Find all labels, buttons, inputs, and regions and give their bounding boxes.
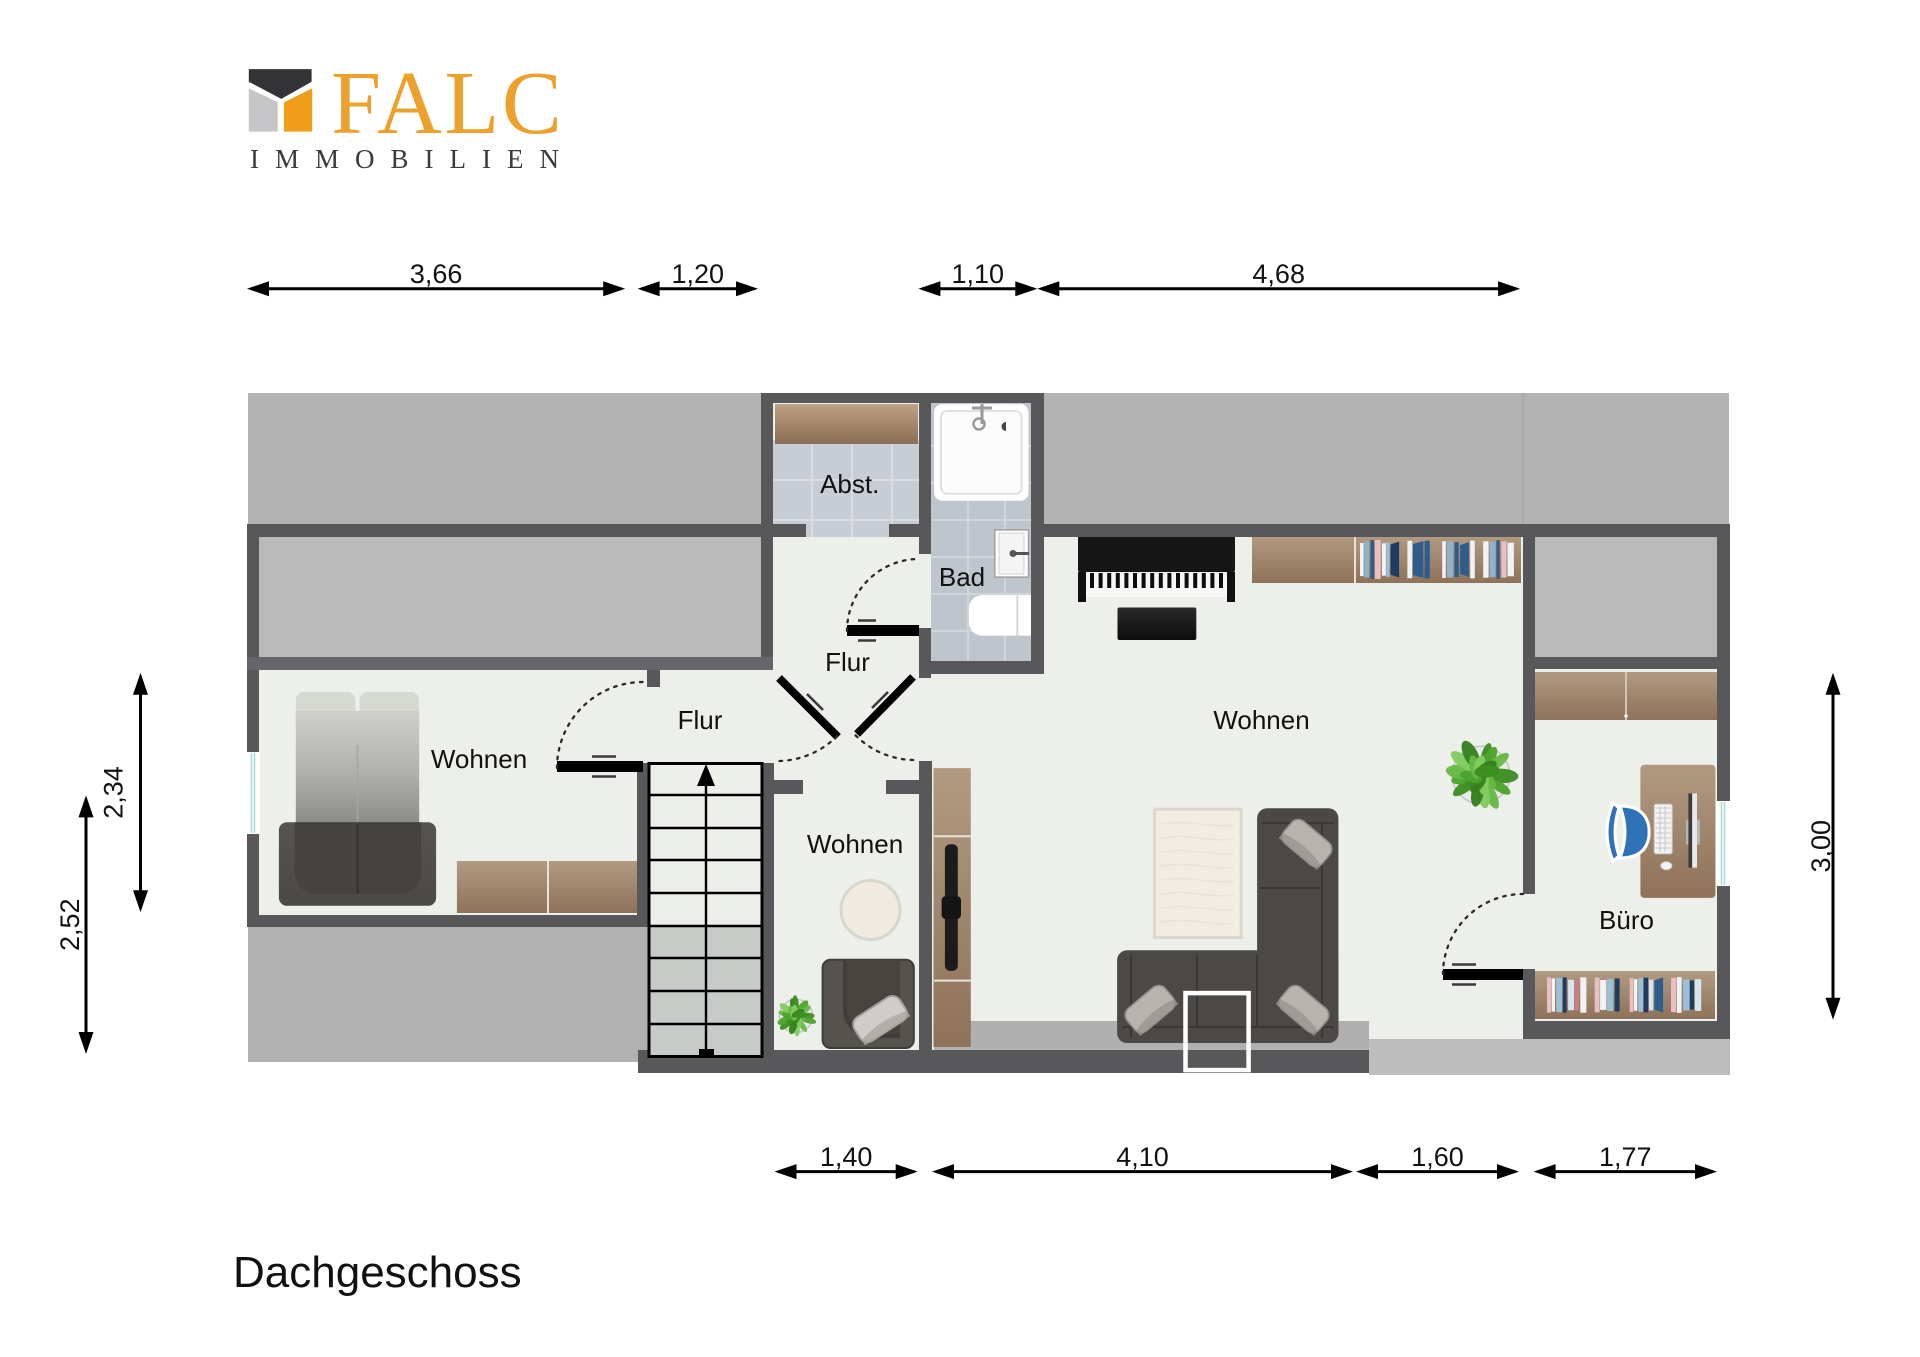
svg-text:1,40: 1,40	[820, 1142, 873, 1172]
svg-text:Flur: Flur	[678, 705, 723, 735]
svg-text:3,66: 3,66	[410, 259, 463, 289]
svg-text:4,68: 4,68	[1252, 259, 1305, 289]
svg-text:Wohnen: Wohnen	[431, 744, 527, 774]
svg-text:1,10: 1,10	[952, 259, 1005, 289]
svg-text:1,60: 1,60	[1411, 1142, 1464, 1172]
svg-text:Dachgeschoss: Dachgeschoss	[233, 1248, 522, 1297]
svg-text:2,52: 2,52	[55, 898, 85, 951]
svg-text:Wohnen: Wohnen	[1213, 705, 1309, 735]
svg-text:Abst.: Abst.	[820, 469, 879, 499]
svg-text:3,00: 3,00	[1806, 820, 1836, 873]
svg-text:1,77: 1,77	[1599, 1142, 1652, 1172]
svg-text:Wohnen: Wohnen	[807, 829, 903, 859]
svg-text:IMMOBILIEN: IMMOBILIEN	[250, 144, 575, 174]
svg-text:4,10: 4,10	[1116, 1142, 1169, 1172]
svg-text:1,20: 1,20	[672, 259, 725, 289]
svg-text:Bad: Bad	[939, 562, 985, 592]
svg-text:2,34: 2,34	[99, 766, 129, 819]
svg-text:Flur: Flur	[825, 647, 870, 677]
svg-text:Büro: Büro	[1599, 905, 1654, 935]
svg-text:FALC: FALC	[331, 54, 564, 153]
